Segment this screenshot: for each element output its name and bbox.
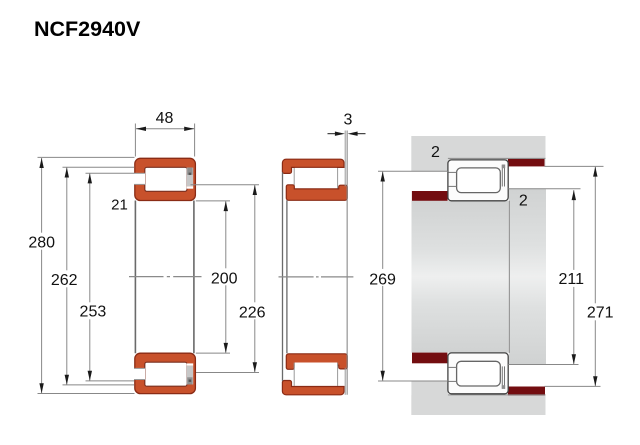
svg-text:21: 21 [111,196,128,213]
svg-text:280: 280 [28,235,55,252]
svg-text:NCF2940V: NCF2940V [34,17,141,41]
svg-text:3: 3 [343,112,352,129]
svg-text:226: 226 [239,304,266,321]
svg-text:200: 200 [211,270,238,287]
svg-text:48: 48 [156,110,174,127]
svg-text:269: 269 [369,271,396,288]
svg-text:2: 2 [519,193,528,210]
svg-text:271: 271 [587,304,614,321]
svg-text:211: 211 [559,271,585,288]
svg-text:262: 262 [51,272,78,289]
svg-text:253: 253 [80,303,107,320]
svg-text:2: 2 [431,144,440,161]
